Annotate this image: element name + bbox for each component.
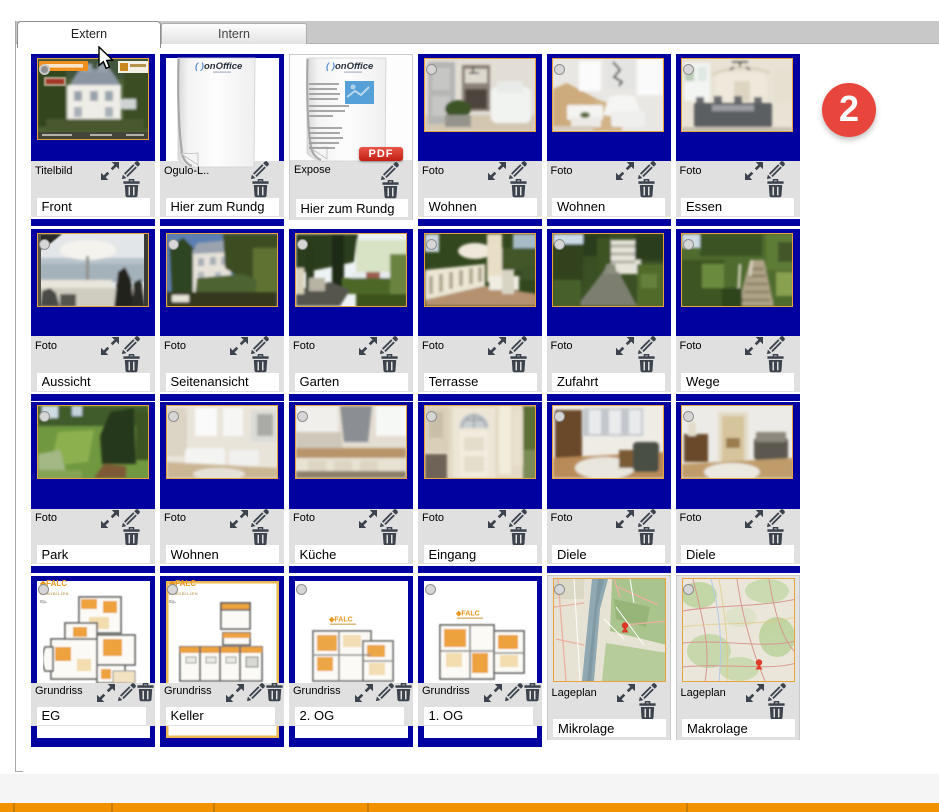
svg-text:( )onOffice: ( )onOffice [326,61,374,72]
svg-text:( )onOffice: ( )onOffice [195,61,243,72]
svg-text:◆FALC: ◆FALC [455,611,480,618]
svg-text:◆FALC: ◆FALC [328,617,353,624]
